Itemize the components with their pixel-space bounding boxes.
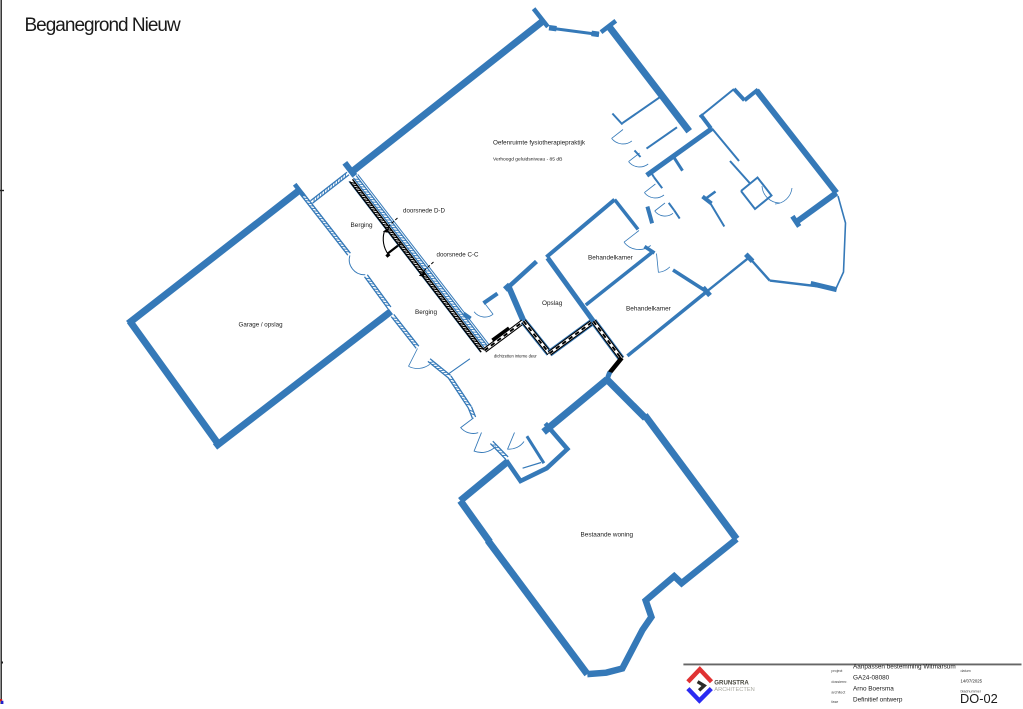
svg-text:fase: fase xyxy=(831,700,838,704)
svg-text:Definitief ontwerp: Definitief ontwerp xyxy=(853,696,903,703)
svg-text:DO-02: DO-02 xyxy=(960,691,998,704)
svg-text:Arno Boersma: Arno Boersma xyxy=(853,686,894,693)
svg-text:ARCHITECTEN: ARCHITECTEN xyxy=(714,687,754,693)
svg-text:Opslag: Opslag xyxy=(542,300,563,307)
svg-text:Oefenruimte fysiotherapieprakt: Oefenruimte fysiotherapiepraktijk xyxy=(493,140,586,147)
svg-text:Verhoogd geluidsniveau - 85 dB: Verhoogd geluidsniveau - 85 dB xyxy=(493,157,562,163)
svg-text:Behandelkamer: Behandelkamer xyxy=(626,306,672,313)
svg-text:Beganegrond Nieuw: Beganegrond Nieuw xyxy=(25,15,181,36)
svg-text:dossiernr.: dossiernr. xyxy=(831,680,847,684)
svg-text:Berging: Berging xyxy=(415,309,437,316)
svg-text:datum: datum xyxy=(961,669,971,673)
svg-text:doorsnede C-C: doorsnede C-C xyxy=(437,252,479,259)
svg-text:GA24-08080: GA24-08080 xyxy=(853,675,890,682)
svg-text:Aanpassen bestemming Witmarsum: Aanpassen bestemming Witmarsum xyxy=(853,664,956,671)
svg-text:14/07/2025: 14/07/2025 xyxy=(961,679,983,684)
svg-text:dichtzetten interne deur: dichtzetten interne deur xyxy=(494,354,537,359)
svg-text:architect: architect xyxy=(831,691,845,695)
svg-text:GRUNSTRA: GRUNSTRA xyxy=(714,679,749,686)
svg-text:Berging: Berging xyxy=(351,222,373,229)
svg-text:doorsnede D-D: doorsnede D-D xyxy=(403,208,445,215)
svg-text:Garage / opslag: Garage / opslag xyxy=(239,322,284,329)
svg-text:Behandelkamer: Behandelkamer xyxy=(588,255,634,262)
svg-text:Bestaande woning: Bestaande woning xyxy=(581,532,634,539)
svg-text:project: project xyxy=(831,669,842,673)
